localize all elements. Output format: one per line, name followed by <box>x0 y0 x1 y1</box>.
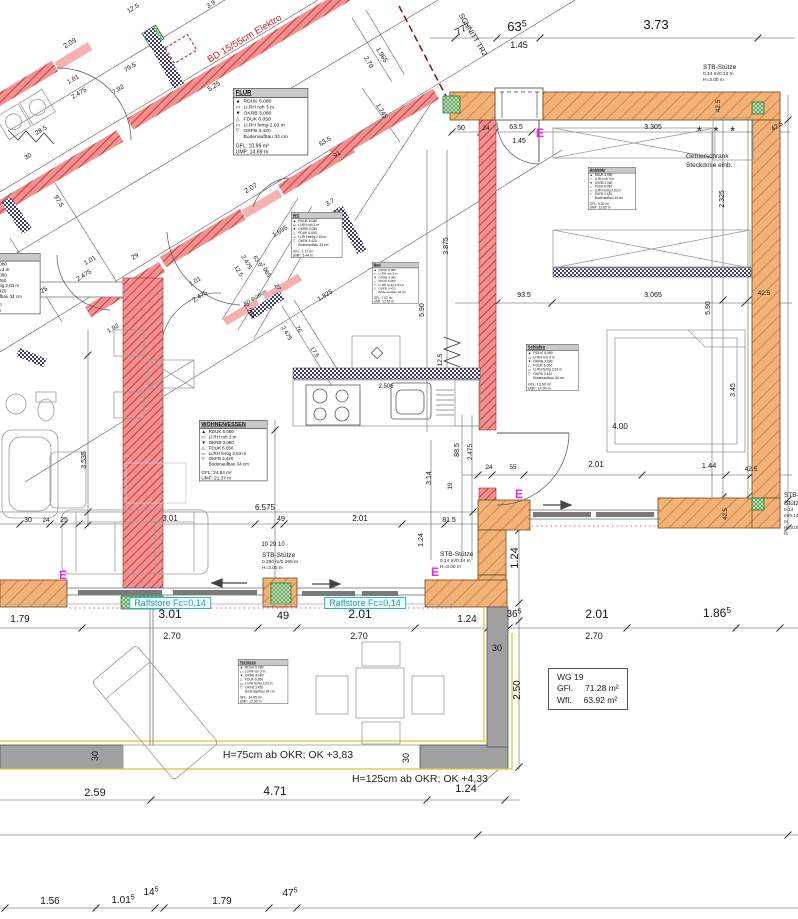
dim-label: 2.325 <box>719 190 726 208</box>
level-symbol <box>293 243 297 247</box>
dim-label: 1.695 <box>271 224 289 239</box>
dim-label: 81.5 <box>442 517 456 524</box>
dim-label: 475 <box>282 888 297 900</box>
wg-number: WG 19 <box>557 672 619 683</box>
room-areas: GFL: 9.30 m²UMF: 12.65 m <box>588 202 635 210</box>
dim-label: 1.44 <box>702 461 717 470</box>
dim-label: 1.01 <box>188 275 203 288</box>
orange-walls <box>0 92 780 607</box>
room-umf: UMF: 12.65 m <box>590 206 635 210</box>
room-title: WOHNEN/ESSEN <box>200 421 267 429</box>
parapet-height-note-125: H=125cm ab OKR; OK +4,33 <box>352 773 488 785</box>
dim-label: 3.7 <box>325 197 337 208</box>
dim-label: 2.01 <box>352 514 368 523</box>
room-info-wc: WC▲RDUK 6.080▭Li.RH roh 3 m▼OKRB 3.080△F… <box>291 212 342 258</box>
room-level-line: Bodenaufbau 34 cm <box>238 689 287 693</box>
room-info-bad: Bad▲RDUK 6.080▭Li.RH roh 3 m▼OKRB 3.080△… <box>372 262 419 304</box>
dim-label: 42.5 <box>723 508 729 520</box>
dim-label: 2.01 <box>588 460 604 469</box>
dim-label: 29 <box>130 252 140 262</box>
room-areas: GFL: 7.57 m²UMF: 12.16 m <box>372 296 418 304</box>
dim-label: 2.01 <box>348 607 372 621</box>
dim-label: 49 <box>277 610 289 622</box>
dim-label: 2.475 <box>75 268 93 283</box>
dim-label: 1.825 <box>316 288 334 303</box>
room-areas: GFL: 14.85 m²UMF: 17.50 m <box>238 695 287 703</box>
level-text: Bodenaufbau 34 cm <box>595 196 623 200</box>
dim-label: 1.45 <box>512 138 526 145</box>
level-symbol <box>236 133 242 139</box>
room-info-ankleide: Ankleide▲RDUK 6.080▭Li.RH roh 3 m▼OKRB 3… <box>588 167 636 210</box>
level-text: Bodenaufbau 34 cm <box>245 689 275 693</box>
dim-label: 2.50 <box>512 680 523 700</box>
dim-label: 25 <box>60 517 68 524</box>
dim-label: 12.5 <box>437 353 444 366</box>
room-umf: UMF: 5.44 m <box>293 253 341 257</box>
dim-label: 3.01 <box>158 607 182 621</box>
dim-label: 1.56 <box>40 896 60 907</box>
stb-label-mid-right: STB-Stütze 0.14 m/0.14 m H=3.00 m <box>440 551 473 571</box>
dim-label: 1.24 <box>418 533 425 547</box>
stb-label-top-right: STB-Stütze 0.14 m/0.14 m H=3.00 m <box>703 64 736 84</box>
floor-plan-stage: 12.53.92.091.012.47579.57.925.251.9652.7… <box>0 0 798 919</box>
room-level-line: Bodenaufbau 34 cm <box>291 243 341 247</box>
e-marker: E <box>59 568 67 582</box>
room-areas: GFL: 10.99 m²UMF: 14.69 m <box>234 143 308 155</box>
room-title <box>0 254 40 262</box>
dim-label: 1.24 <box>509 547 521 568</box>
room-info-flur: FLUR▲RDUK 6.080▭Li.RH roh 3 m▼OKRB 3.080… <box>233 88 308 156</box>
dim-label: 2.70 <box>585 631 603 641</box>
dim-label: 30 <box>401 753 411 763</box>
dim-label: 2.70 <box>362 55 375 70</box>
dim-label: 3.065 <box>644 292 662 299</box>
dim-label: 12.5 <box>126 2 141 15</box>
dim-label: 24 <box>482 125 490 132</box>
dim-label: 2.01 <box>585 607 609 621</box>
room-info-wohnen: WOHNEN/ESSEN▲RDUK 6.080▭Li.RH roh 3 m▼OK… <box>199 420 267 481</box>
level-symbol <box>240 689 244 693</box>
level-text: Bodenaufbau 34 cm <box>379 290 407 294</box>
dim-label: 10 29 10 <box>261 542 285 548</box>
room-level-line: Bodenaufbau 34 cm <box>526 376 578 380</box>
dim-label: 12.5 <box>232 265 243 279</box>
room-areas: GFL: 1.79 m²UMF: 2.65 m <box>0 302 40 313</box>
dim-label: 3.45 <box>730 383 737 397</box>
dim-label: 2.475 <box>279 326 292 343</box>
dim-label: 3.73 <box>643 17 668 32</box>
room-umf: UMF: 2.65 m <box>0 308 38 314</box>
dim-label: 1.45 <box>510 40 528 50</box>
room-level-line: Bodenaufbau 34 cm <box>200 461 267 466</box>
gefrierschrank-note: Gefrierschrank Steckdose einb. <box>686 152 732 170</box>
level-text: Bodenaufbau 34 cm <box>244 133 288 139</box>
dim-label: 2.70 <box>163 631 181 641</box>
dim-label: 88.5 <box>454 443 461 457</box>
room-info-terrasse: Terrasse▲RDUK 6.080▭Li.RH roh 3 m▼OKRB 3… <box>238 659 288 704</box>
room-umf: UMF: 14.69 m <box>236 149 306 155</box>
stb-label-right-edge: STB-Stütze 0.14 m/0.14 m H=3.00 m <box>784 492 798 538</box>
room-info-schlafen: Schlafen▲RDUK 6.080▭Li.RH roh 3 m▼OKRB 3… <box>526 344 578 391</box>
dim-label: 3.535 <box>81 451 88 469</box>
dim-label: 93.5 <box>517 292 531 299</box>
dim-label: 30 <box>24 517 32 524</box>
stb-label-center: STB-Stütze 0.290 m/0.265 m H=3.00 m <box>262 552 298 572</box>
dim-label: 3.14 <box>426 471 433 485</box>
dim-label: 1.24 <box>457 614 477 625</box>
dim-label: 6.575 <box>255 503 276 512</box>
e-marker: E <box>431 565 439 579</box>
dim-label: 2.70 <box>350 631 368 641</box>
dim-label: 1.92 <box>106 322 121 335</box>
level-text: Bodenaufbau 34 cm <box>0 294 22 299</box>
room-areas: GFL: 13.60 m²UMF: 14.90 m <box>526 382 578 391</box>
dim-label: 2.506 <box>378 384 394 390</box>
dim-label: 42.5 <box>715 99 722 112</box>
dim-label: 28.5 <box>34 124 49 137</box>
dim-label: 24 <box>485 464 493 471</box>
dim-label: 3.305 <box>644 124 662 131</box>
dim-label: 2.475 <box>239 255 252 272</box>
room-areas: GFL: 24.84 m²UMF: 21.37 m <box>200 470 267 481</box>
dim-label: 5.90 <box>705 301 712 315</box>
level-symbol <box>590 196 594 200</box>
dim-label: 3.875 <box>443 237 450 255</box>
dim-label: 1.01 <box>83 254 98 267</box>
dim-label: 17.5 <box>308 346 319 360</box>
dim-label: 4.00 <box>612 422 628 431</box>
dim-label: 145 <box>143 887 158 899</box>
dim-label: 2.475 <box>467 443 474 460</box>
dim-label: 63.5 <box>318 135 333 148</box>
dim-label: 79.5 <box>123 61 138 74</box>
dim-label: 50 <box>457 125 465 132</box>
dim-label: 4.71 <box>263 784 287 798</box>
dim-label: 24 <box>42 517 50 524</box>
dim-label: 19 <box>447 482 454 490</box>
room-areas: GFL: 1.72 m²UMF: 5.44 m <box>291 249 341 257</box>
dim-label: 635 <box>507 18 527 34</box>
room-title: FLUR <box>234 89 308 98</box>
furniture <box>0 89 753 780</box>
dim-label: 365 <box>506 609 521 621</box>
room-info-cut: ▲RDUK 6.080▭Li.RH roh 3 m▼OKRB 3.080△FDU… <box>0 253 40 314</box>
wg-summary-box: WG 19 GFl.71.28 m² Wfl.63.92 m² <box>548 668 628 710</box>
dim-label: 1.015 <box>111 895 134 907</box>
dim-label: 1.79 <box>212 896 232 907</box>
dim-label: 5.90 <box>419 303 426 317</box>
room-umf: UMF: 21.37 m <box>201 475 265 481</box>
dim-label: 1.965 <box>374 46 389 64</box>
level-text: Bodenaufbau 34 cm <box>533 376 564 380</box>
room-level-line: Bodenaufbau 34 cm <box>234 133 308 139</box>
dim-label: 2.09 <box>63 37 78 50</box>
dim-label: 1.79 <box>10 614 30 625</box>
room-umf: UMF: 14.90 m <box>528 386 577 390</box>
raffstore-label-right: Raffstore Fc=0,14 <box>324 597 406 609</box>
dim-label: 3.01 <box>162 514 178 523</box>
room-level-line: Bodenaufbau 34 cm <box>372 290 418 294</box>
room-umf: UMF: 17.50 m <box>240 700 287 704</box>
dim-label: 30 <box>492 643 502 653</box>
dim-label: 1.865 <box>703 605 731 620</box>
dim-label: 2.59 <box>84 787 105 799</box>
dim-label: 2.475 <box>70 86 88 101</box>
niche-asterisks: * * * <box>697 124 739 139</box>
raffstore-label-left: Raffstore Fc=0,14 <box>129 597 211 609</box>
level-text: Bodenaufbau 34 cm <box>298 243 328 247</box>
room-umf: UMF: 12.16 m <box>374 300 417 304</box>
dim-label: 63.5 <box>509 124 523 131</box>
dim-label: 30 <box>23 152 33 162</box>
dim-label: 42.5 <box>758 290 771 297</box>
dim-label: 2.07 <box>244 182 259 195</box>
level-symbol <box>528 376 532 380</box>
level-symbol <box>374 290 378 294</box>
dim-label: 42.5 <box>745 466 758 473</box>
dim-label: 76 <box>294 325 303 334</box>
dim-label: 3.9 <box>206 0 218 10</box>
room-level-line: Bodenaufbau 34 cm <box>0 294 40 299</box>
dim-label: 55 <box>509 464 517 471</box>
dim-label: 2.475 <box>191 289 209 304</box>
room-level-line: Bodenaufbau 34 cm <box>588 196 635 200</box>
dim-label: 1.01 <box>66 73 81 86</box>
parapet-height-note-75: H=75cm ab OKR; OK +3,83 <box>223 749 353 761</box>
dim-label: 49 <box>277 516 285 523</box>
e-marker: E <box>536 126 544 140</box>
dim-label: 30 <box>90 751 100 761</box>
e-marker: E <box>515 487 523 501</box>
level-symbol <box>201 461 206 466</box>
level-text: Bodenaufbau 34 cm <box>209 461 249 466</box>
dim-label: 7.92 <box>111 83 126 96</box>
